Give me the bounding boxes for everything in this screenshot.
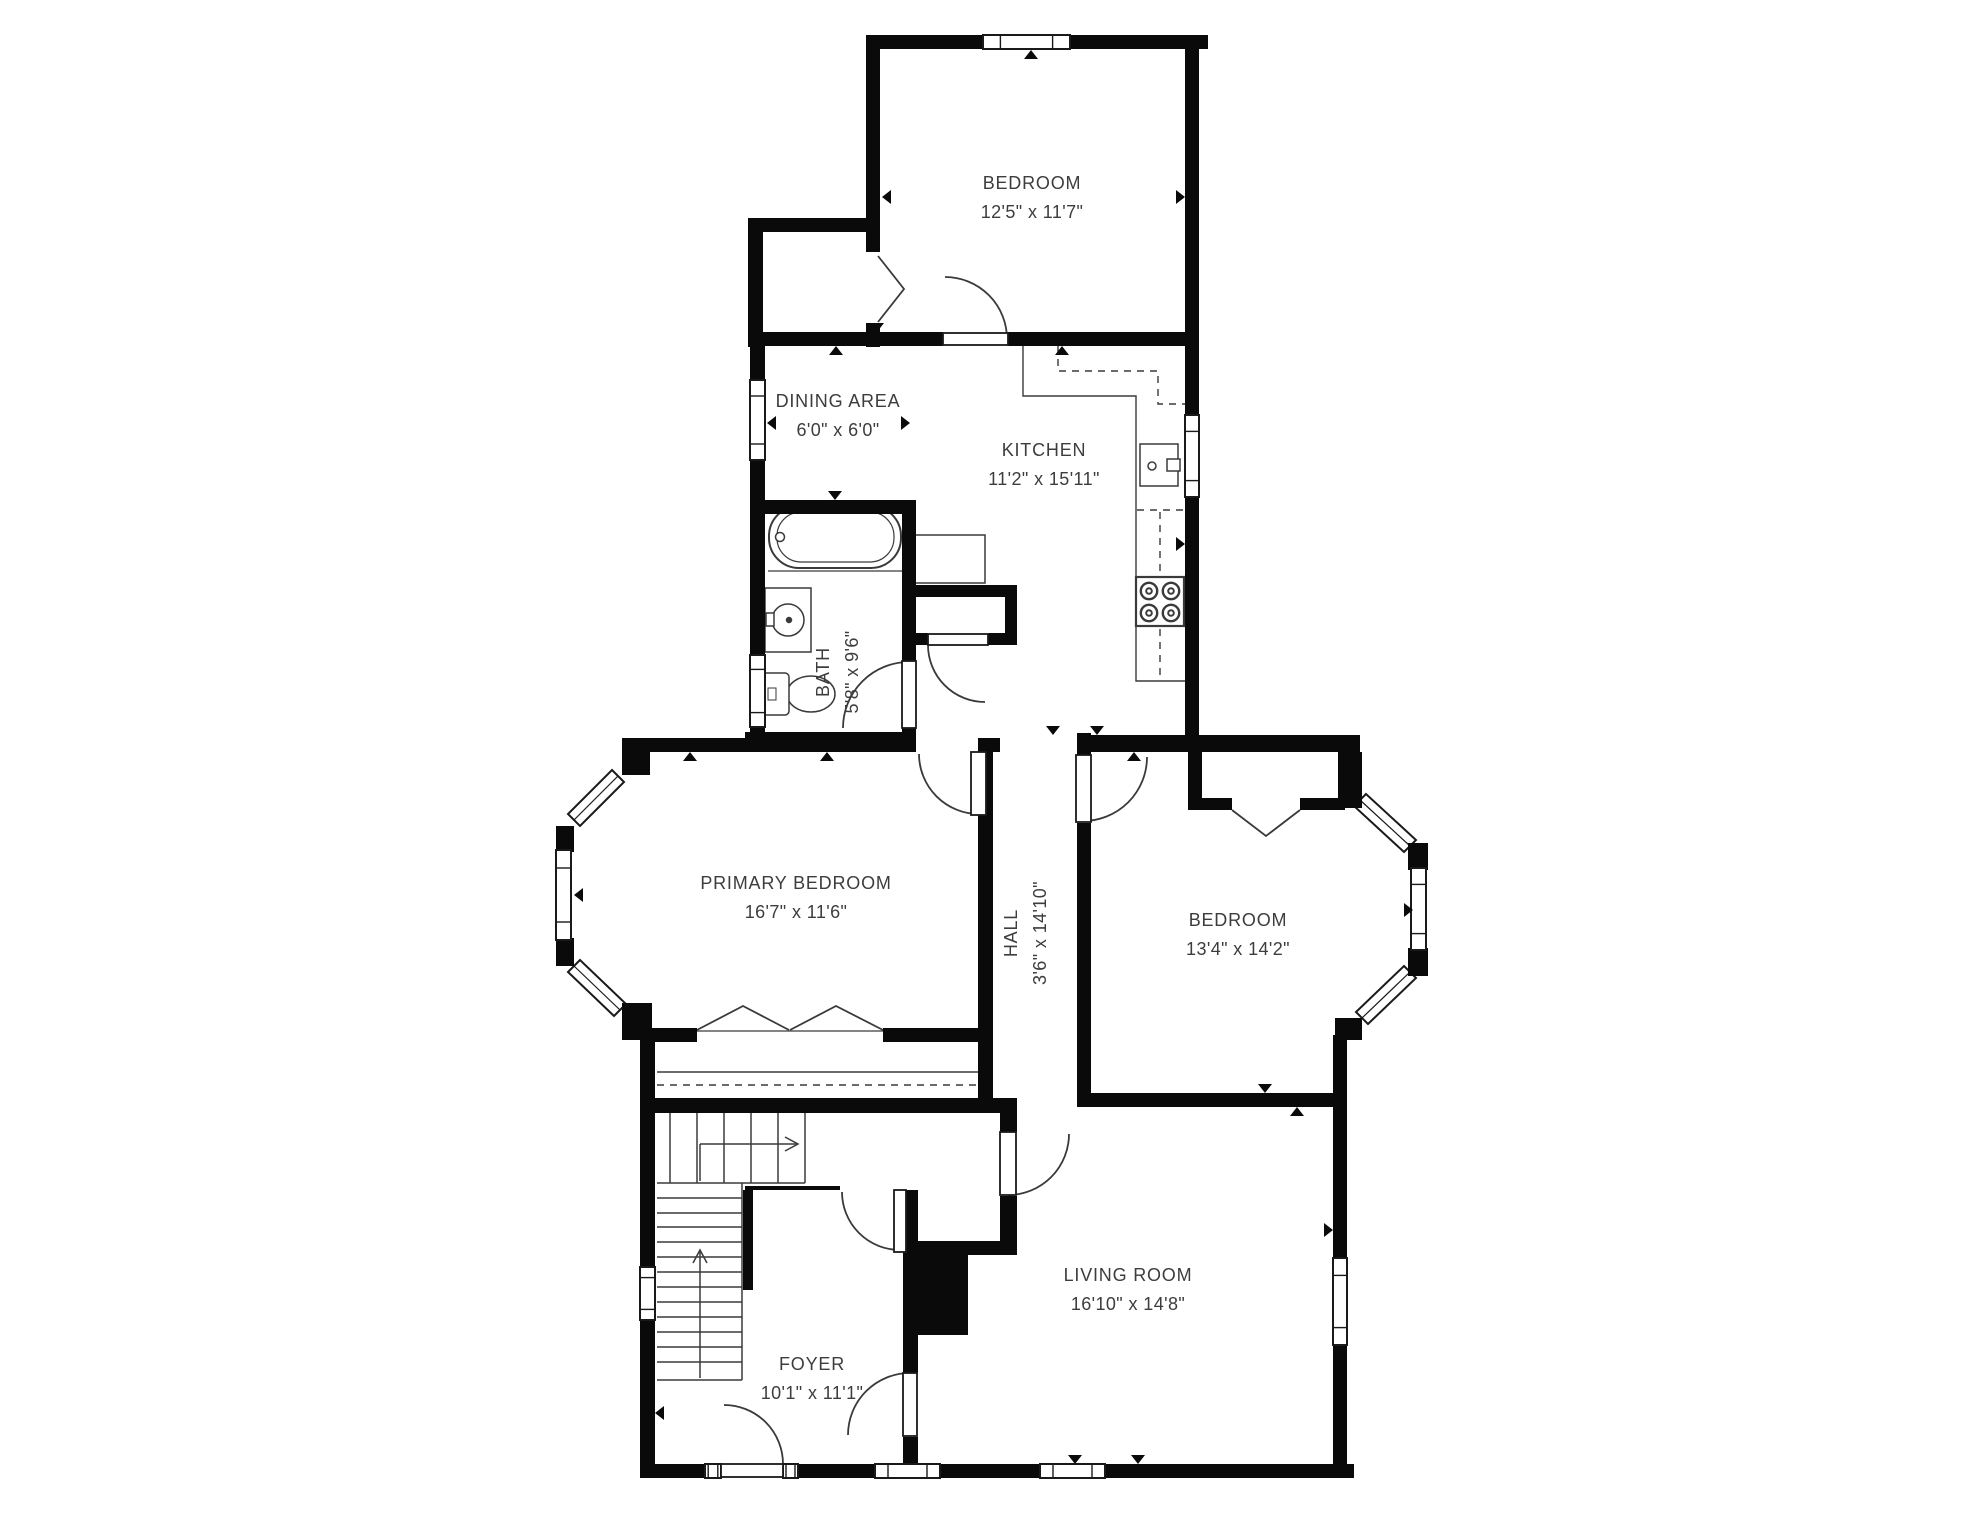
- wall-marker: [1258, 1084, 1272, 1093]
- wall: [1408, 948, 1428, 976]
- door-leaf: [721, 1464, 783, 1477]
- wall: [978, 738, 1000, 752]
- stove: [1136, 577, 1184, 626]
- room-label-bedroom-right: BEDROOM 13'4" x 14'2": [1186, 910, 1290, 960]
- room-name: FOYER: [761, 1354, 864, 1375]
- window: [750, 655, 765, 727]
- wall: [903, 1437, 918, 1465]
- wall: [1077, 735, 1360, 752]
- wall: [916, 633, 928, 645]
- kitchen-sink: [1140, 444, 1180, 486]
- wall: [650, 738, 757, 752]
- window-frame: [783, 1464, 798, 1478]
- wall-marker: [1176, 537, 1185, 551]
- wall: [1338, 752, 1362, 808]
- window: [1040, 1464, 1105, 1478]
- door-swing-hall-living: [1008, 1134, 1069, 1195]
- wall-marker: [574, 888, 583, 902]
- window-frame: [1040, 1464, 1105, 1478]
- wall: [748, 218, 763, 347]
- room-name: BATH: [813, 630, 834, 713]
- room-label-primary-bedroom: PRIMARY BEDROOM 16'7" x 11'6": [700, 873, 891, 923]
- window: [705, 1464, 721, 1478]
- wall: [1185, 497, 1199, 752]
- window: [556, 850, 571, 940]
- door-swing-bedroom-right: [1083, 757, 1147, 821]
- room-dims: 6'0" x 6'0": [776, 420, 901, 441]
- door-leaf: [943, 333, 1008, 345]
- room-dims: 16'7" x 11'6": [700, 902, 891, 923]
- door-leaf: [902, 661, 916, 728]
- wall-marker: [901, 416, 910, 430]
- wall: [650, 1028, 697, 1042]
- door-swing-foyer-stairs: [842, 1192, 900, 1250]
- wall: [640, 1320, 655, 1478]
- wall-marker: [1127, 752, 1141, 761]
- window-frame: [640, 1267, 655, 1320]
- door-swing-pantry: [928, 645, 985, 702]
- wall: [1077, 823, 1091, 1093]
- wall: [1077, 1093, 1347, 1107]
- wall: [640, 1464, 705, 1478]
- wall: [1185, 35, 1199, 415]
- wall: [750, 500, 915, 514]
- wall: [743, 1190, 753, 1290]
- wall: [1008, 332, 1199, 346]
- wall: [866, 35, 983, 49]
- room-label-dining-area: DINING AREA 6'0" x 6'0": [776, 391, 901, 441]
- wall: [748, 332, 943, 346]
- window-frame: [556, 850, 571, 940]
- door-leaf: [971, 752, 986, 815]
- wall-marker: [1324, 1223, 1333, 1237]
- room-dims: 5'8" x 9'6": [842, 630, 863, 713]
- wall: [640, 1030, 655, 1267]
- window: [1185, 415, 1199, 497]
- room-dims: 12'5" x 11'7": [981, 202, 1084, 223]
- wall: [1333, 1035, 1347, 1093]
- wall-marker: [683, 752, 697, 761]
- room-dims: 11'2" x 15'11": [988, 469, 1100, 490]
- wall: [883, 1028, 993, 1042]
- door-leaf: [903, 1373, 917, 1436]
- wall: [916, 585, 1017, 597]
- window-frame: [750, 655, 765, 727]
- staircase: [657, 1113, 805, 1380]
- window: [783, 1464, 798, 1478]
- wall: [1333, 1093, 1347, 1258]
- wall: [1000, 1100, 1017, 1132]
- window-frame: [750, 380, 765, 460]
- window: [640, 1267, 655, 1320]
- window-frame: [1411, 868, 1426, 950]
- room-name: LIVING ROOM: [1064, 1265, 1193, 1286]
- room-name: PRIMARY BEDROOM: [700, 873, 891, 894]
- wall: [1408, 843, 1428, 870]
- wall: [798, 1464, 875, 1478]
- window: [875, 1464, 940, 1478]
- window: [1333, 1258, 1347, 1345]
- wall: [622, 738, 650, 775]
- wall-marker: [828, 491, 842, 500]
- wall-marker: [1046, 726, 1060, 735]
- door-swing-primary-bedroom: [919, 754, 979, 814]
- wall-marker: [882, 190, 891, 204]
- room-label-foyer: FOYER 10'1" x 11'1": [761, 1354, 864, 1404]
- wall: [750, 460, 765, 655]
- room-name: BEDROOM: [1186, 910, 1290, 931]
- window-frame: [875, 1464, 940, 1478]
- wall: [556, 826, 574, 852]
- room-label-hall: HALL 3'6" x 14'10": [1001, 881, 1051, 985]
- wall-marker: [820, 752, 834, 761]
- window: [750, 380, 765, 460]
- wall-marker: [1024, 50, 1038, 59]
- room-dims: 16'10" x 14'8": [1064, 1294, 1193, 1315]
- wall: [1188, 798, 1232, 810]
- wall-marker: [1055, 346, 1069, 355]
- closet-strip: [657, 1072, 978, 1085]
- room-name: DINING AREA: [776, 391, 901, 412]
- room-name: KITCHEN: [988, 440, 1100, 461]
- room-label-bedroom-top: BEDROOM 12'5" x 11'7": [981, 173, 1084, 223]
- room-dims: 3'6" x 14'10": [1030, 881, 1051, 985]
- window-frame: [705, 1464, 721, 1478]
- wall: [940, 1464, 1040, 1478]
- window-frame: [1333, 1258, 1347, 1345]
- wall-marker: [1068, 1455, 1082, 1464]
- floor-plan: BEDROOM 12'5" x 11'7" DINING AREA 6'0" x…: [0, 0, 1988, 1536]
- wall: [1333, 1345, 1347, 1478]
- room-name: BEDROOM: [981, 173, 1084, 194]
- door-leaf: [928, 634, 988, 645]
- wall-marker: [655, 1406, 664, 1420]
- door-swing-bedroom-top: [945, 277, 1007, 339]
- wall-marker: [829, 346, 843, 355]
- wall: [745, 732, 916, 752]
- wall: [902, 500, 916, 661]
- wall-marker: [1290, 1107, 1304, 1116]
- room-name: HALL: [1001, 881, 1022, 985]
- room-dims: 10'1" x 11'1": [761, 1383, 864, 1404]
- fireplace: [912, 1252, 968, 1335]
- wall: [748, 218, 878, 232]
- wall: [988, 633, 1017, 645]
- wall: [640, 1098, 1017, 1113]
- window: [983, 35, 1070, 49]
- door-leaf: [894, 1190, 906, 1252]
- wall: [556, 938, 574, 966]
- bathtub: [768, 506, 902, 571]
- refrigerator: [911, 535, 985, 583]
- floor-plan-drawing: [0, 0, 1988, 1536]
- room-label-kitchen: KITCHEN 11'2" x 15'11": [988, 440, 1100, 490]
- door-leaf: [1000, 1132, 1016, 1195]
- vanity-sink: [765, 588, 811, 652]
- wall-marker: [1176, 190, 1185, 204]
- wall-marker: [1090, 726, 1104, 735]
- wall: [1105, 1464, 1354, 1478]
- room-label-living-room: LIVING ROOM 16'10" x 14'8": [1064, 1265, 1193, 1315]
- wall: [750, 346, 765, 380]
- door-swing-front-door: [724, 1405, 783, 1464]
- window: [1411, 868, 1426, 950]
- window-frame: [983, 35, 1070, 49]
- wall-marker: [1131, 1455, 1145, 1464]
- door-leaf: [1076, 755, 1091, 822]
- room-dims: 13'4" x 14'2": [1186, 939, 1290, 960]
- window-frame: [1185, 415, 1199, 497]
- room-label-bath: BATH 5'8" x 9'6": [813, 630, 863, 713]
